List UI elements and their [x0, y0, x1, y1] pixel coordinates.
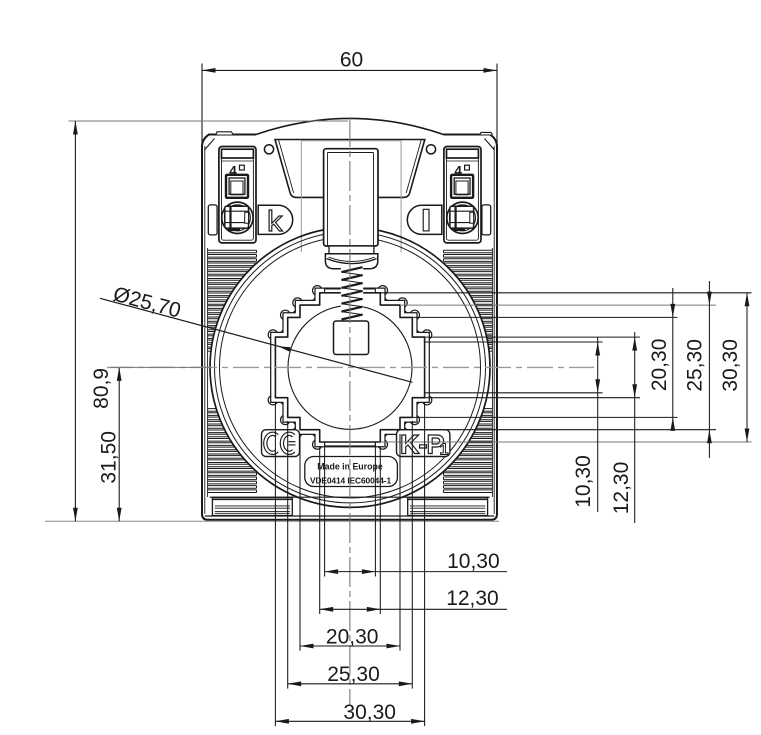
svg-text:K-P: K-P — [400, 430, 444, 460]
svg-text:12,30: 12,30 — [610, 462, 633, 515]
svg-text:20,30: 20,30 — [648, 339, 671, 392]
svg-text:30,30: 30,30 — [719, 339, 742, 392]
svg-text:k: k — [267, 206, 283, 238]
svg-text:4: 4 — [454, 164, 462, 179]
svg-text:20,30: 20,30 — [326, 626, 379, 649]
svg-text:10,30: 10,30 — [447, 550, 500, 573]
svg-text:31,50: 31,50 — [98, 431, 121, 484]
svg-text:4: 4 — [229, 164, 237, 179]
svg-text:80,9: 80,9 — [90, 368, 113, 409]
svg-text:60: 60 — [340, 49, 363, 72]
svg-text:12,30: 12,30 — [446, 587, 499, 610]
svg-text:25,30: 25,30 — [327, 663, 380, 686]
svg-text:25,30: 25,30 — [684, 339, 707, 392]
svg-text:VDE0414 IEC60044-1: VDE0414 IEC60044-1 — [310, 476, 392, 486]
svg-text:30,30: 30,30 — [343, 701, 396, 724]
svg-text:1: 1 — [440, 442, 449, 459]
svg-text:10,30: 10,30 — [572, 455, 595, 508]
